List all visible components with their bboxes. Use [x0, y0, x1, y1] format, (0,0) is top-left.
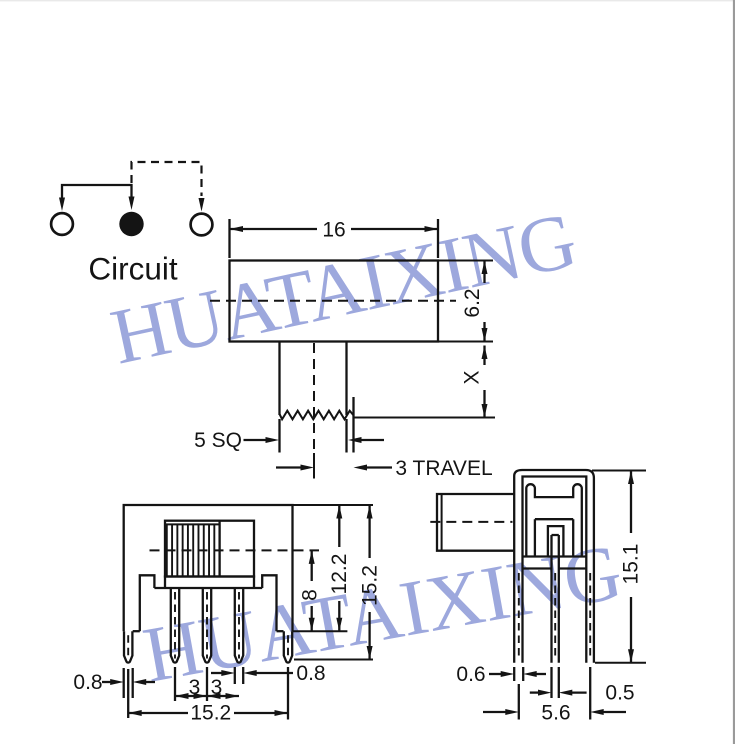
svg-text:X: X: [461, 370, 484, 384]
svg-text:12.2: 12.2: [328, 554, 351, 595]
svg-text:0.8: 0.8: [73, 671, 102, 694]
svg-text:16: 16: [322, 219, 345, 242]
svg-text:0.5: 0.5: [605, 682, 634, 705]
svg-text:Circuit: Circuit: [88, 251, 178, 287]
svg-text:15.2: 15.2: [358, 565, 381, 606]
svg-text:3: 3: [211, 676, 223, 699]
svg-text:15.2: 15.2: [190, 702, 231, 725]
svg-text:6.2: 6.2: [461, 288, 484, 317]
svg-text:8: 8: [299, 589, 322, 601]
svg-text:0.8: 0.8: [296, 662, 325, 685]
svg-text:5.6: 5.6: [541, 702, 570, 725]
svg-text:15.1: 15.1: [620, 544, 643, 585]
svg-text:0.6: 0.6: [456, 663, 485, 686]
svg-text:3: 3: [189, 676, 201, 699]
svg-text:5 SQ: 5 SQ: [194, 429, 242, 452]
svg-text:3 TRAVEL: 3 TRAVEL: [395, 457, 492, 480]
